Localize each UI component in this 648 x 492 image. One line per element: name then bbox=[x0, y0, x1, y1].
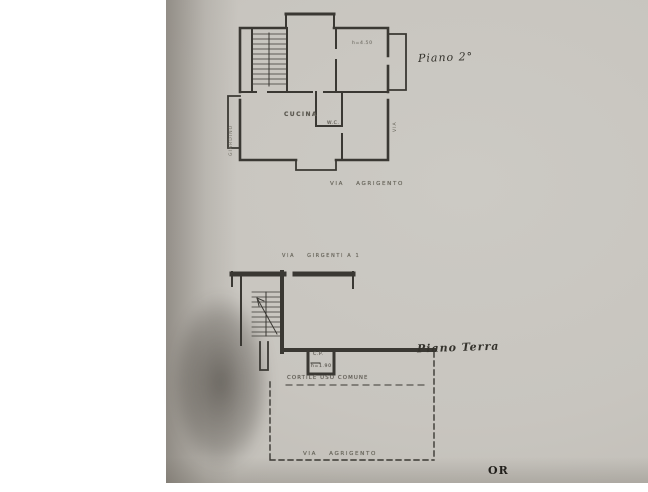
piano2-wc-label: W.C. bbox=[327, 121, 340, 126]
street-name: AGRIGENTO bbox=[356, 181, 404, 187]
scanned-page: h=4.50 CUCINA W.C. GIARDINO VIA Piano 2°… bbox=[0, 0, 648, 492]
piano2-right-street-label: VIA bbox=[393, 62, 398, 132]
street-prefix: VIA bbox=[330, 181, 344, 187]
street-name: GIRGENTI A 1 bbox=[307, 253, 360, 259]
street-prefix: VIA bbox=[303, 451, 317, 457]
piano2-left-street-label: GIARDINO bbox=[229, 98, 234, 156]
piano2-kitchen-label: CUCINA bbox=[284, 111, 318, 118]
piano-terra-street-top: VIA GIRGENTI A 1 bbox=[282, 253, 360, 259]
courtyard-room-line1: C.P. bbox=[313, 352, 324, 357]
piano-terra-plan-drawing bbox=[232, 272, 434, 460]
piano2-handwritten-title: Piano 2° bbox=[418, 50, 474, 65]
street-name: AGRIGENTO bbox=[329, 451, 377, 457]
floorplan-drawings bbox=[0, 0, 648, 492]
piano2-street-bottom: VIA AGRIGENTO bbox=[330, 181, 404, 187]
piano2-plan-drawing bbox=[228, 14, 406, 170]
courtyard-room-line2: h=1.90 bbox=[311, 364, 332, 369]
piano2-height-note: h=4.50 bbox=[352, 41, 373, 46]
courtyard-label: CORTILE USO COMUNE bbox=[287, 375, 369, 381]
corner-mark: OR bbox=[488, 464, 509, 477]
street-prefix: VIA bbox=[282, 253, 295, 259]
piano-terra-street-bottom: VIA AGRIGENTO bbox=[303, 451, 377, 457]
